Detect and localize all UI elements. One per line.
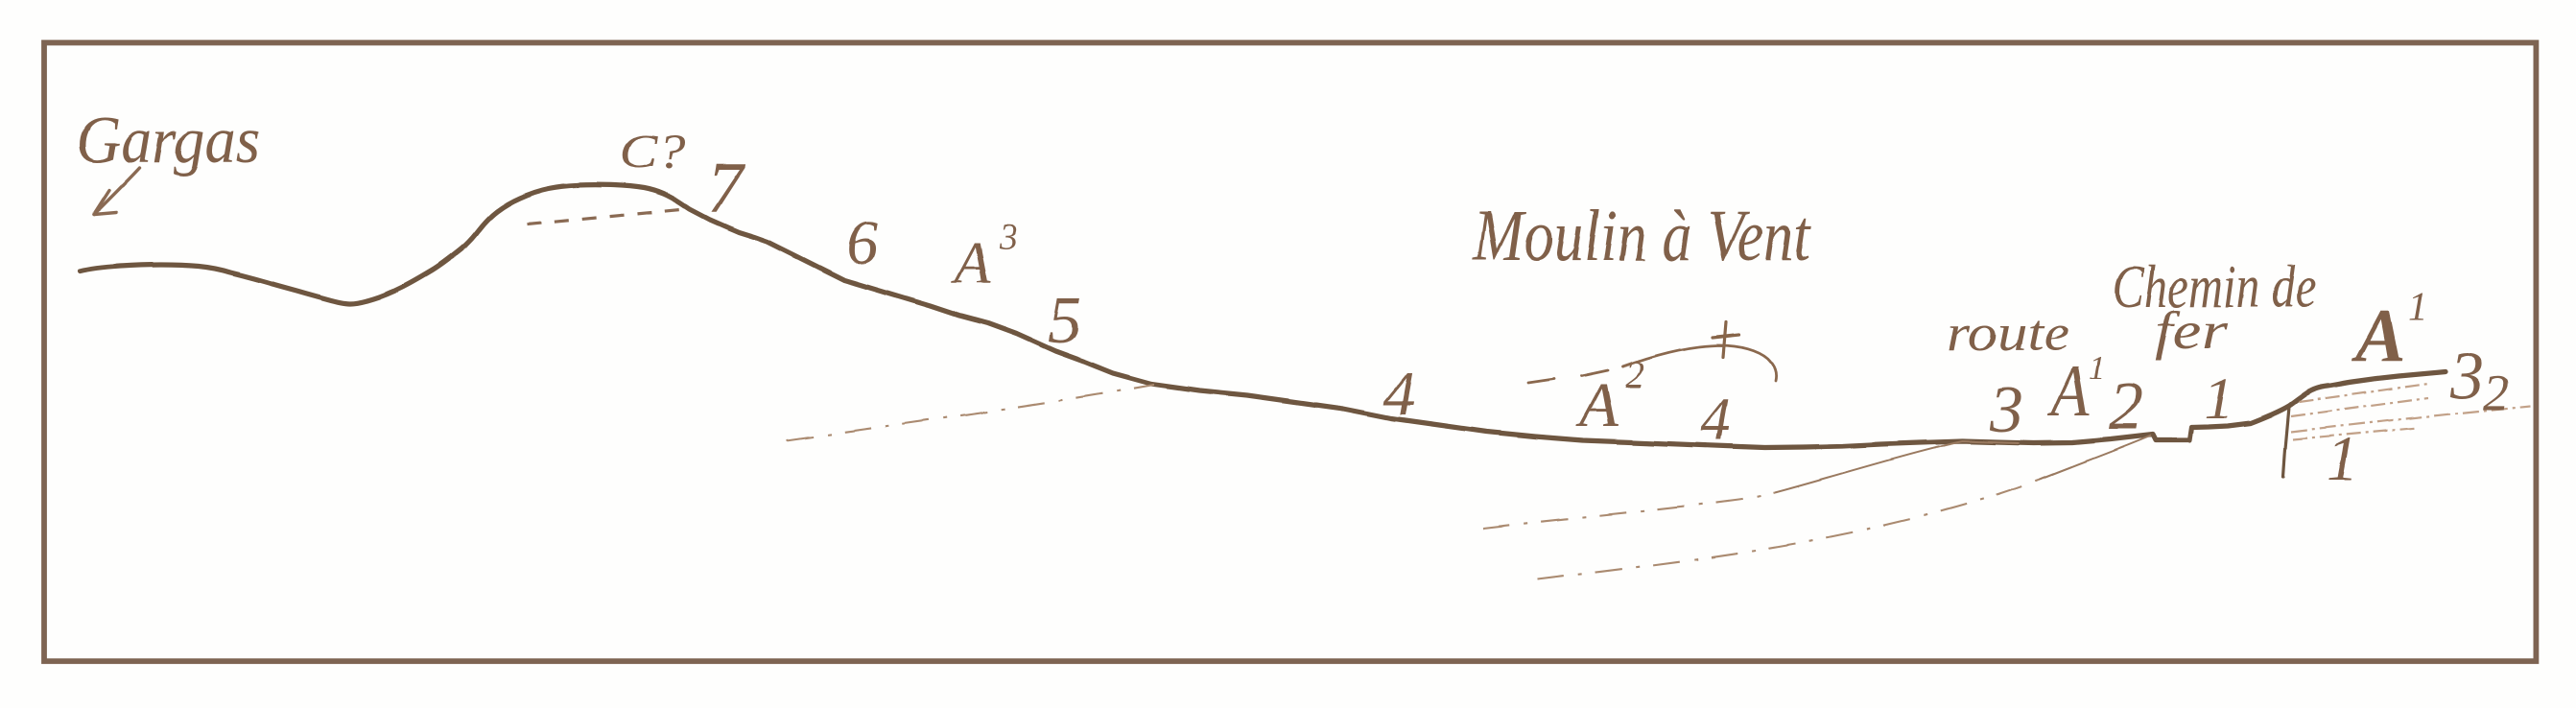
svg-text:1: 1 [2089,350,2105,386]
svg-text:7: 7 [707,148,746,228]
svg-text:2: 2 [2109,367,2143,444]
svg-text:A: A [2351,294,2405,377]
svg-text:Moulin à Vent: Moulin à Vent [1473,196,1811,276]
svg-text:Gargas: Gargas [76,104,260,177]
svg-text:4: 4 [1383,359,1415,429]
svg-text:A: A [951,231,992,296]
svg-text:2: 2 [2483,364,2509,421]
svg-text:6: 6 [846,208,878,278]
svg-text:C?: C? [620,126,686,179]
svg-text:3: 3 [999,217,1018,257]
svg-text:1: 1 [2327,424,2358,494]
svg-text:3: 3 [2449,340,2484,413]
svg-text:5: 5 [1048,284,1081,358]
svg-text:1: 1 [2204,366,2233,432]
svg-text:1: 1 [2408,285,2428,329]
svg-text:fer: fer [2155,301,2228,361]
svg-text:A: A [1575,370,1619,440]
svg-text:4: 4 [1701,388,1731,453]
svg-text:3: 3 [1989,373,2023,447]
svg-text:A: A [2047,351,2091,432]
